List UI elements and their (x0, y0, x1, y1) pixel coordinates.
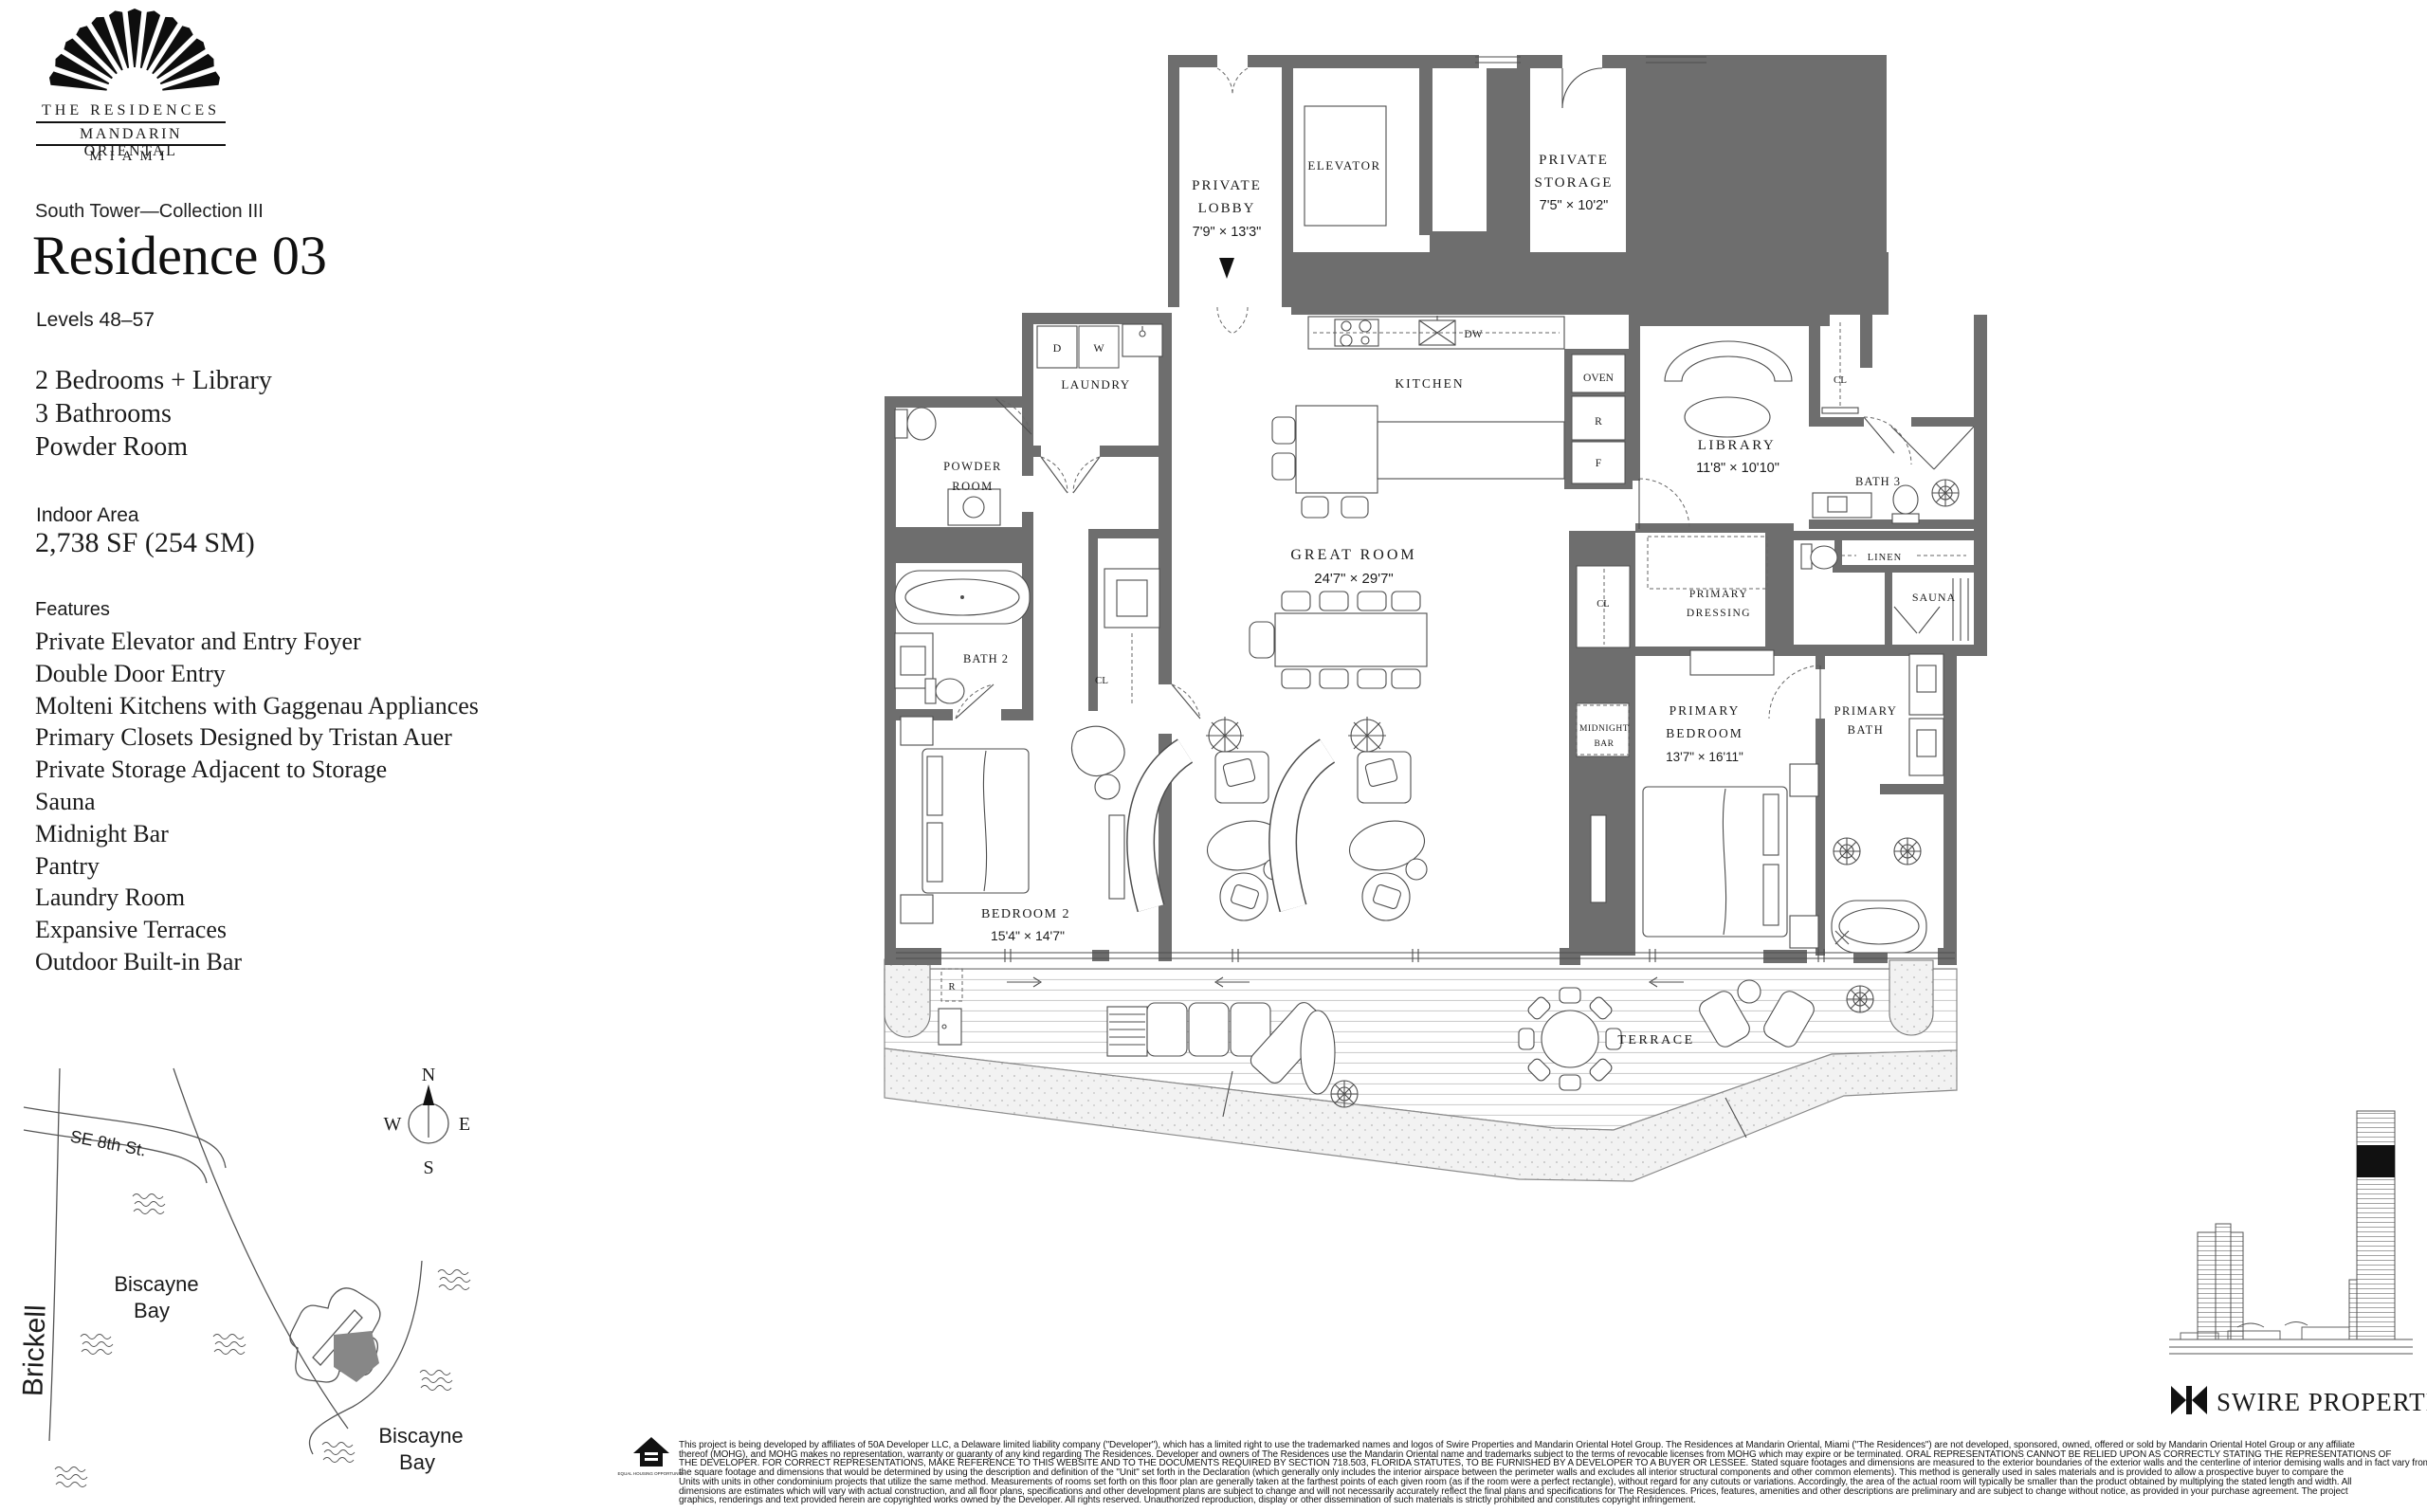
door-arc (1217, 68, 1248, 95)
stool (1341, 497, 1368, 518)
room-label: BATH 2 (963, 652, 1009, 665)
swire-properties-logo: SWIRE PROPERTIES (2171, 1386, 2427, 1416)
oval-table (1685, 397, 1770, 437)
toilet-tank (925, 679, 936, 703)
closet-label: CL (1834, 374, 1847, 386)
map-bay-label: Bay (399, 1450, 435, 1474)
room-label: PRIMARY (1834, 704, 1898, 718)
map-district-label: Brickell (17, 1304, 51, 1397)
nightstand (1790, 916, 1818, 948)
vanity (1909, 654, 1943, 715)
curved-sofa (1665, 341, 1792, 381)
door-leaf (1864, 417, 1894, 453)
room-dims: 13'7" × 16'11" (1666, 750, 1743, 764)
room-dims: 7'9" × 13'3" (1193, 225, 1262, 240)
entry-arrow-icon (1219, 258, 1234, 279)
kitchen-fixtures (1272, 316, 1564, 518)
lounge-chair (1071, 726, 1124, 775)
compass-rose: N W E S (384, 1065, 471, 1178)
dining-chair (1392, 592, 1420, 610)
side-table (1738, 980, 1761, 1003)
legal-disclaimer: This project is being developed by affil… (679, 1441, 2423, 1505)
closet-label: CL (1095, 675, 1108, 686)
toilet-bowl (1893, 485, 1918, 514)
room-label: STORAGE (1535, 175, 1614, 191)
bath2-fixtures (895, 571, 1030, 719)
room-label: SAUNA (1912, 591, 1956, 604)
map-bay-label: Biscayne (378, 1424, 463, 1448)
tv-console (1690, 650, 1774, 675)
pillow (927, 756, 942, 815)
room-label: BAR (1594, 739, 1614, 749)
vanity (1909, 719, 1943, 775)
disclaimer-line: graphics, renderings and text provided h… (679, 1496, 2423, 1505)
room-label: ROOM (952, 480, 994, 493)
outdoor-sofa-seat (1147, 1003, 1187, 1056)
door-arc (1217, 307, 1248, 334)
closet-label: CL (1597, 599, 1609, 610)
room-label: MIDNIGHT (1579, 724, 1629, 734)
map-bay-label: Bay (134, 1299, 170, 1322)
room-label: BATH (1848, 723, 1885, 737)
shower-glass (1891, 427, 1974, 469)
room-label: DRESSING (1687, 608, 1751, 619)
road (173, 1068, 348, 1429)
room-label: PRIVATE (1539, 153, 1609, 168)
appliance-label: W (1093, 341, 1104, 355)
room-label: TERRACE (1617, 1033, 1694, 1047)
room-dims: 15'4" × 14'7" (991, 928, 1065, 943)
room-label: BEDROOM 2 (981, 907, 1070, 921)
appliance-label: D (1053, 341, 1062, 355)
room-label: LIBRARY (1698, 438, 1777, 453)
toilet-bowl (1811, 546, 1837, 569)
compass-s: S (423, 1157, 433, 1178)
dining-armchair (1250, 622, 1274, 658)
sauna-bench (1953, 578, 1968, 641)
bedroom2-furniture (901, 717, 1124, 923)
room-label: LAUNDRY (1061, 377, 1130, 392)
ottoman (1095, 774, 1120, 799)
media-console (1109, 815, 1124, 899)
dining-chair (1282, 592, 1310, 610)
appliance-label: R (1595, 416, 1602, 428)
pillow (927, 823, 942, 882)
equal-housing-logo: EQUAL HOUSING OPPORTUNITY (617, 1437, 684, 1476)
sauna-doors (1894, 607, 1940, 633)
island-counter (1378, 422, 1564, 479)
room-dims: 11'8" × 10'10" (1696, 461, 1779, 476)
tower-elevation (2169, 1111, 2413, 1354)
location-map: SE 8th St. Brickell Biscayne Bay Biscayn… (17, 1065, 470, 1487)
nightstand (1790, 764, 1818, 796)
room-label: LOBBY (1198, 201, 1256, 216)
wardrobe (1648, 537, 1767, 589)
room-label: POWDER (943, 460, 1002, 473)
toilet-tank (1801, 544, 1812, 569)
room-label: PRIVATE (1192, 178, 1262, 193)
planter (1889, 960, 1933, 1035)
room-label: GREAT ROOM (1290, 547, 1416, 563)
nightstand (901, 717, 933, 745)
pillow (1763, 794, 1779, 855)
dining-chair (1320, 669, 1348, 688)
floorplan-brochure-page: { "brand": { "fan_icon": "mandarin-orien… (0, 0, 2427, 1512)
planter-oval (1301, 1011, 1335, 1094)
door-arc (1562, 68, 1602, 108)
room-label: BATH 3 (1855, 475, 1901, 488)
vanity (948, 489, 1000, 525)
levels-48-57-highlight (2357, 1145, 2395, 1177)
equal-housing-text: EQUAL HOUSING OPPORTUNITY (617, 1471, 684, 1476)
site-footprint (290, 1288, 380, 1382)
appliance-label: F (1596, 458, 1601, 469)
pocket-door (1822, 408, 1858, 413)
swire-mark-icon (2171, 1386, 2186, 1414)
toilet-bowl (907, 408, 936, 440)
nightstand (901, 895, 933, 923)
outdoor-sofa-seat (1189, 1003, 1229, 1056)
compass-e: E (459, 1114, 470, 1135)
road (49, 1068, 60, 1441)
swire-mark-icon (2192, 1386, 2207, 1414)
door-leaf (1172, 684, 1200, 719)
dining-chair (1392, 669, 1420, 688)
floor-plan-graphic: PRIVATE LOBBY 7'9" × 13'3" ELEVATOR PRIV… (0, 0, 2427, 1512)
stool (1272, 417, 1295, 444)
stool (1272, 453, 1295, 480)
map-bay-label: Biscayne (114, 1272, 198, 1296)
room-label: BEDROOM (1666, 726, 1743, 740)
toilet-bowl (936, 679, 964, 703)
appliance-label: DW (1464, 329, 1482, 340)
door-leaf (1041, 457, 1100, 493)
toilet-tank (895, 410, 907, 438)
compass-n: N (422, 1065, 435, 1085)
dining-set (1250, 592, 1427, 688)
room-label: ELEVATOR (1307, 158, 1380, 173)
bench (1591, 815, 1606, 902)
room-label: PRIMARY (1689, 589, 1748, 600)
dining-chair (1358, 669, 1386, 688)
kitchen-island (1296, 406, 1378, 493)
stool (1302, 497, 1328, 518)
hall-closet (1104, 569, 1200, 719)
dining-chair (1282, 669, 1310, 688)
dining-chair (1320, 592, 1348, 610)
closet-label: LINEN (1868, 553, 1903, 563)
room-label: PRIMARY (1670, 703, 1741, 718)
dining-chair (1358, 592, 1386, 610)
residence-unit-highlight (334, 1331, 379, 1382)
outdoor-dining-table (1542, 1011, 1598, 1067)
toilet-tank (1892, 514, 1919, 523)
appliance-label: R (948, 982, 955, 993)
appliance-label: OVEN (1583, 373, 1615, 384)
room-dims: 7'5" × 10'2" (1540, 198, 1609, 213)
dining-table (1275, 613, 1427, 666)
map-street-label: SE 8th St. (68, 1127, 147, 1160)
planter (885, 959, 930, 1037)
room-label: KITCHEN (1395, 376, 1464, 391)
pillow (1763, 865, 1779, 925)
room-dims: 24'7" × 29'7" (1314, 571, 1394, 587)
compass-w: W (384, 1114, 402, 1135)
cabinet (1104, 569, 1159, 628)
swire-wordmark: SWIRE PROPERTIES (2217, 1388, 2427, 1416)
library-furniture (1639, 341, 1792, 529)
